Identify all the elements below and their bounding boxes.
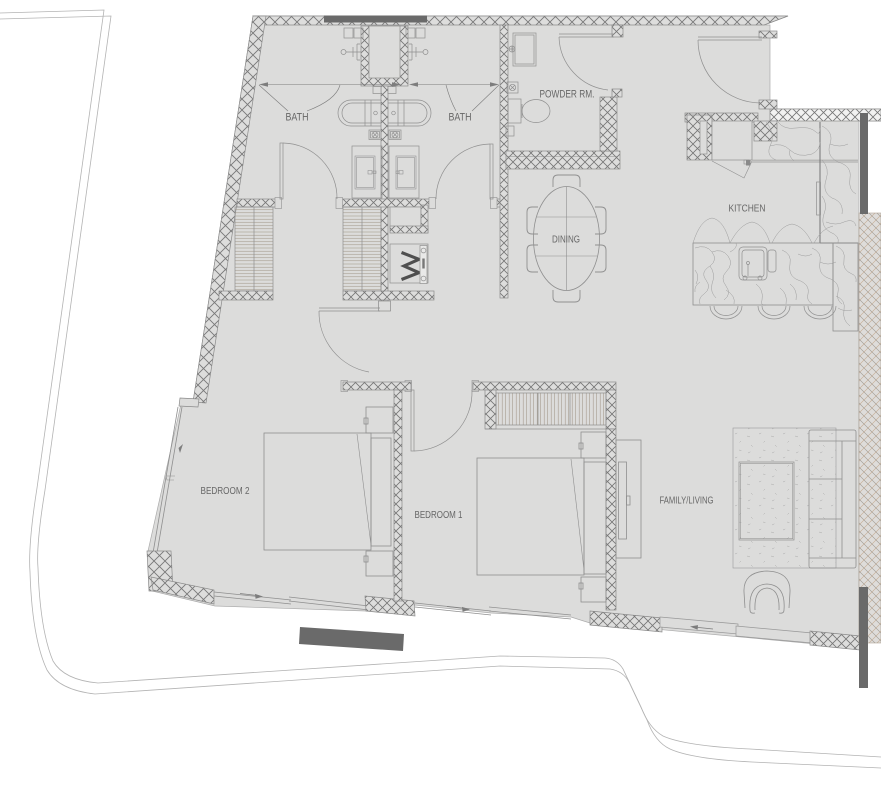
svg-text:KITCHEN: KITCHEN (729, 204, 766, 215)
svg-text:BEDROOM 1: BEDROOM 1 (415, 510, 463, 521)
svg-text:POWDER RM.: POWDER RM. (540, 89, 595, 101)
svg-text:BEDROOM 2: BEDROOM 2 (201, 486, 250, 497)
svg-text:BATH: BATH (449, 112, 472, 124)
svg-text:BATH: BATH (286, 112, 309, 124)
svg-text:DINING: DINING (552, 235, 580, 246)
svg-text:FAMILY/LIVING: FAMILY/LIVING (660, 496, 714, 507)
